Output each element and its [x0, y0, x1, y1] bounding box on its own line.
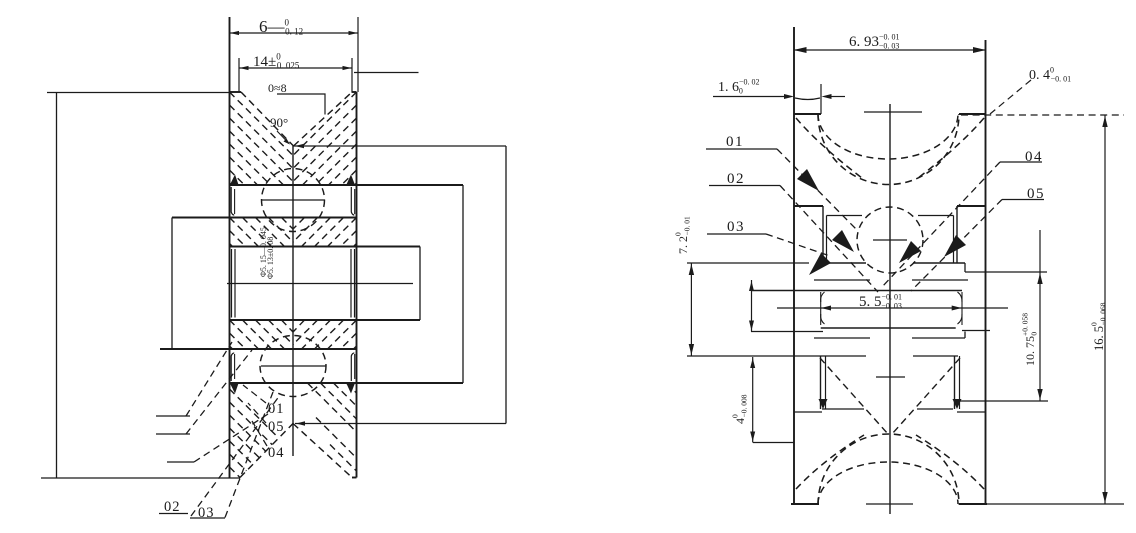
svg-text:03: 03: [727, 219, 745, 235]
svg-text:02: 02: [164, 499, 181, 515]
svg-text:90°: 90°: [270, 115, 288, 130]
svg-text:01: 01: [268, 401, 285, 417]
svg-text:04: 04: [1025, 149, 1043, 165]
svg-text:0≈8: 0≈8: [268, 81, 287, 95]
svg-text:01: 01: [726, 134, 744, 150]
svg-text:Φ5. 13±0. 08: Φ5. 13±0. 08: [266, 237, 275, 279]
svg-text:02: 02: [727, 171, 745, 187]
svg-text:5. 5−0. 01−0. 03: 5. 5−0. 01−0. 03: [859, 293, 902, 311]
svg-text:05: 05: [1027, 186, 1045, 202]
svg-text:6. 93−0. 01−0. 03: 6. 93−0. 01−0. 03: [849, 33, 900, 51]
svg-text:04: 04: [268, 445, 285, 461]
svg-text:03: 03: [198, 505, 215, 521]
svg-text:05: 05: [268, 419, 285, 435]
